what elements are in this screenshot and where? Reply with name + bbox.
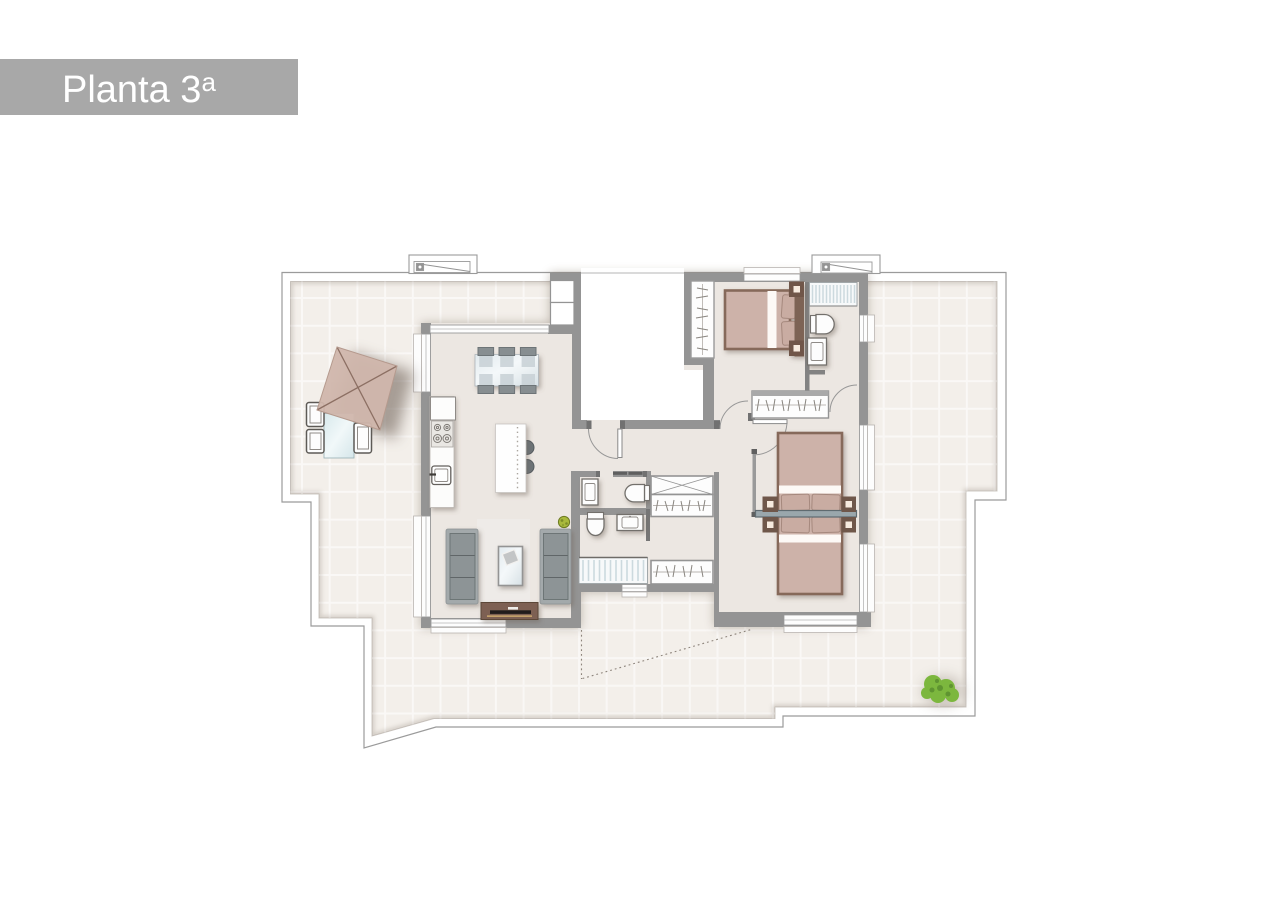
- svg-text:Planta 3a: Planta 3a: [62, 67, 216, 111]
